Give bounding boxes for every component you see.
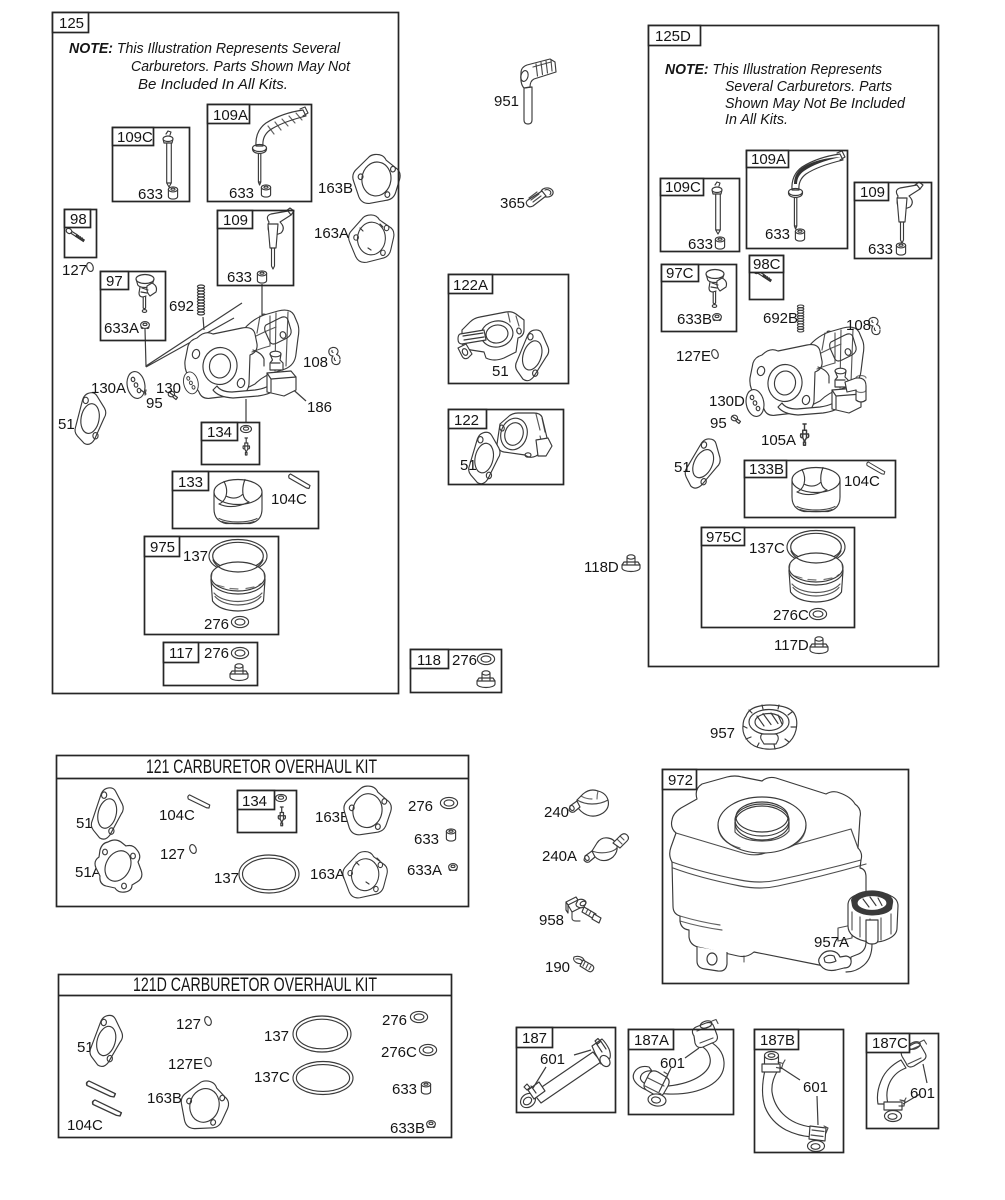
- svg-text:633: 633: [414, 831, 439, 848]
- svg-text:51: 51: [674, 459, 691, 476]
- svg-text:122: 122: [454, 412, 479, 429]
- svg-text:104C: 104C: [271, 491, 307, 508]
- svg-text:957A: 957A: [814, 934, 849, 951]
- svg-text:692B: 692B: [763, 310, 798, 327]
- svg-text:958: 958: [539, 912, 564, 929]
- svg-text:601: 601: [540, 1051, 565, 1068]
- svg-text:633: 633: [229, 185, 254, 202]
- svg-text:118D: 118D: [584, 559, 619, 576]
- svg-text:633: 633: [138, 186, 163, 203]
- svg-text:122A: 122A: [453, 277, 488, 294]
- svg-text:633: 633: [868, 241, 893, 258]
- svg-text:633: 633: [227, 269, 252, 286]
- svg-text:109A: 109A: [213, 107, 248, 124]
- svg-text:Shown May Not Be Included: Shown May Not Be Included: [725, 95, 906, 112]
- svg-text:633A: 633A: [407, 862, 442, 879]
- svg-text:633: 633: [688, 236, 713, 253]
- svg-text:137: 137: [183, 548, 208, 565]
- svg-text:137C: 137C: [749, 540, 785, 557]
- svg-text:187: 187: [522, 1030, 547, 1047]
- svg-text:240A: 240A: [542, 848, 577, 865]
- svg-text:137: 137: [214, 870, 239, 887]
- svg-text:957: 957: [710, 725, 735, 742]
- svg-text:109: 109: [860, 184, 885, 201]
- svg-text:633: 633: [392, 1081, 417, 1098]
- svg-text:187A: 187A: [634, 1032, 669, 1049]
- svg-text:276: 276: [382, 1012, 407, 1029]
- svg-text:118: 118: [417, 652, 441, 669]
- svg-text:133B: 133B: [749, 461, 784, 478]
- svg-text:633B: 633B: [677, 311, 712, 328]
- svg-text:97: 97: [106, 273, 123, 290]
- svg-text:601: 601: [660, 1055, 685, 1072]
- svg-text:133: 133: [178, 474, 203, 491]
- svg-text:108: 108: [846, 317, 871, 334]
- svg-text:127E: 127E: [676, 348, 711, 365]
- svg-text:137C: 137C: [254, 1069, 290, 1086]
- svg-text:190: 190: [545, 959, 570, 976]
- svg-text:163B: 163B: [318, 180, 353, 197]
- svg-text:276C: 276C: [773, 607, 809, 624]
- svg-text:127: 127: [176, 1016, 201, 1033]
- svg-text:240: 240: [544, 804, 569, 821]
- svg-text:276: 276: [408, 798, 433, 815]
- svg-text:163A: 163A: [310, 866, 345, 883]
- svg-text:95: 95: [146, 395, 163, 412]
- svg-text:365: 365: [500, 195, 525, 212]
- svg-text:51: 51: [58, 416, 75, 433]
- svg-text:Carburetors. Parts Shown May N: Carburetors. Parts Shown May Not: [131, 58, 351, 75]
- svg-text:601: 601: [803, 1079, 828, 1096]
- svg-text:109C: 109C: [117, 129, 153, 146]
- svg-text:98: 98: [70, 211, 87, 228]
- svg-text:Be Included In All Kits.: Be Included In All Kits.: [138, 76, 288, 93]
- svg-text:104C: 104C: [844, 473, 880, 490]
- svg-text:127: 127: [62, 262, 87, 279]
- svg-text:109: 109: [223, 212, 248, 229]
- svg-text:117: 117: [169, 645, 193, 662]
- svg-text:163B: 163B: [147, 1090, 182, 1107]
- svg-text:975C: 975C: [706, 529, 742, 546]
- svg-text:276: 276: [452, 652, 477, 669]
- svg-text:692: 692: [169, 298, 194, 315]
- svg-text:276: 276: [204, 645, 229, 662]
- svg-text:633B: 633B: [390, 1120, 425, 1137]
- svg-text:51: 51: [76, 815, 93, 832]
- svg-text:109A: 109A: [751, 151, 786, 168]
- svg-text:NOTE: This Illustration Repres: NOTE: This Illustration Represents: [665, 61, 882, 78]
- svg-text:125: 125: [59, 15, 84, 32]
- svg-text:51: 51: [460, 457, 477, 474]
- svg-text:98C: 98C: [753, 256, 781, 273]
- svg-text:105A: 105A: [761, 432, 796, 449]
- svg-text:NOTE: This Illustration Repres: NOTE: This Illustration Represents Sever…: [69, 40, 341, 57]
- svg-text:121D CARBURETOR OVERHAUL KIT: 121D CARBURETOR OVERHAUL KIT: [133, 975, 377, 996]
- svg-text:121 CARBURETOR OVERHAUL KIT: 121 CARBURETOR OVERHAUL KIT: [146, 757, 377, 778]
- svg-text:951: 951: [494, 93, 519, 110]
- svg-text:134: 134: [242, 793, 267, 810]
- svg-text:187C: 187C: [872, 1035, 908, 1052]
- svg-text:187B: 187B: [760, 1032, 795, 1049]
- svg-text:130D: 130D: [709, 393, 745, 410]
- svg-text:108: 108: [303, 354, 328, 371]
- svg-text:95: 95: [710, 415, 727, 432]
- svg-text:633A: 633A: [104, 320, 139, 337]
- svg-text:117D: 117D: [774, 637, 809, 654]
- svg-text:125D: 125D: [655, 28, 691, 45]
- svg-text:975: 975: [150, 539, 175, 556]
- svg-text:130A: 130A: [91, 380, 126, 397]
- svg-text:276C: 276C: [381, 1044, 417, 1061]
- svg-text:601: 601: [910, 1085, 935, 1102]
- svg-text:134: 134: [207, 424, 232, 441]
- svg-text:127E: 127E: [168, 1056, 203, 1073]
- svg-text:In All Kits.: In All Kits.: [725, 111, 788, 128]
- svg-text:Several Carburetors. Parts: Several Carburetors. Parts: [725, 78, 892, 95]
- svg-text:104C: 104C: [67, 1117, 103, 1134]
- svg-text:186: 186: [307, 399, 332, 416]
- svg-text:137: 137: [264, 1028, 289, 1045]
- svg-text:109C: 109C: [665, 179, 701, 196]
- svg-text:51: 51: [492, 363, 509, 380]
- svg-text:276: 276: [204, 616, 229, 633]
- svg-text:97C: 97C: [666, 265, 694, 282]
- svg-text:104C: 104C: [159, 807, 195, 824]
- svg-text:972: 972: [668, 772, 693, 789]
- svg-text:163A: 163A: [314, 225, 349, 242]
- svg-text:633: 633: [765, 226, 790, 243]
- svg-text:127: 127: [160, 846, 185, 863]
